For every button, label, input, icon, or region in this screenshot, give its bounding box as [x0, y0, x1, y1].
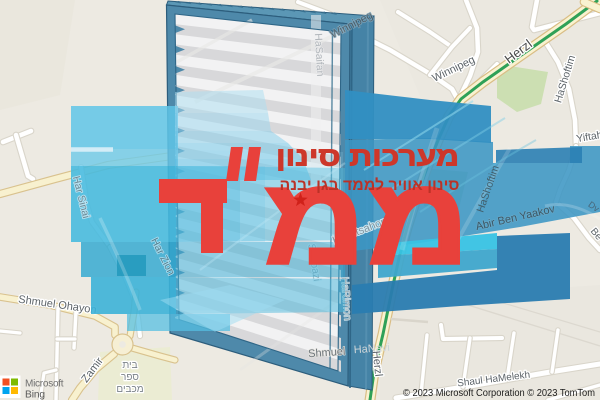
svg-text:HaSaifan: HaSaifan — [312, 33, 326, 77]
svg-text:סינון אוויר לממד בגן יבנה: סינון אוויר לממד בגן יבנה — [280, 177, 460, 194]
svg-text:ספר: ספר — [121, 372, 139, 383]
svg-text:Bing: Bing — [25, 390, 45, 400]
svg-text:בית: בית — [122, 360, 137, 371]
svg-text:ממ: ממ — [263, 152, 470, 291]
svg-text:© 2023 Microsoft Corporation ©: © 2023 Microsoft Corporation © 2023 TomT… — [403, 388, 595, 399]
svg-text:Microsoft: Microsoft — [25, 379, 64, 390]
svg-text:מכבים: מכבים — [116, 384, 143, 395]
svg-text:HaNavi: HaNavi — [353, 342, 390, 356]
